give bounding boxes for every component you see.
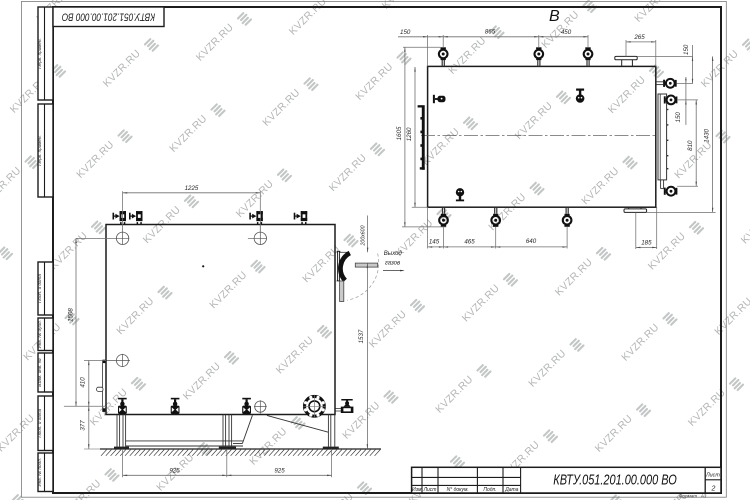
svg-text:1430: 1430 [703,128,710,142]
svg-text:1605: 1605 [396,126,403,140]
svg-text:1260: 1260 [406,127,413,141]
svg-text:925: 925 [274,467,285,474]
svg-text:Инв. № подл.: Инв. № подл. [37,458,42,487]
svg-text:377: 377 [80,420,87,431]
svg-text:810: 810 [687,140,694,151]
svg-text:Подп. и дата: Подп. и дата [37,408,42,437]
svg-text:925: 925 [169,467,180,474]
svg-text:200х600: 200х600 [360,225,366,246]
svg-text:А3: А3 [700,493,707,498]
svg-text:N° докум.: N° докум. [447,487,469,493]
svg-text:Инв. № дубл.: Инв. № дубл. [37,320,42,348]
svg-text:Лист: Лист [705,473,720,479]
svg-text:Перв. примен.: Перв. примен. [37,135,42,166]
svg-text:Дата: Дата [504,487,518,493]
svg-text:В: В [549,8,560,25]
svg-text:Перв. примен.: Перв. примен. [37,38,42,69]
svg-text:150: 150 [675,112,682,123]
svg-text:265: 265 [633,34,645,41]
svg-text:185: 185 [641,239,652,246]
svg-text:Формат: Формат [679,493,697,498]
svg-text:Выход: Выход [384,251,403,257]
svg-text:КВТУ.051.201.00.000 ВО: КВТУ.051.201.00.000 ВО [61,10,155,22]
svg-text:865: 865 [485,29,496,36]
svg-text:Взам. инв. №: Взам. инв. № [37,358,42,386]
svg-text:145: 145 [429,238,440,245]
svg-text:465: 465 [464,239,475,246]
svg-text:150: 150 [400,29,411,36]
svg-text:Подп.: Подп. [483,487,496,493]
svg-text:Лист: Лист [423,487,437,493]
svg-text:1508: 1508 [68,308,75,322]
svg-text:КВТУ.051.201.00.000 ВО: КВТУ.051.201.00.000 ВО [553,471,677,488]
svg-text:Подп. и дата: Подп. и дата [37,274,42,303]
svg-text:410: 410 [80,377,87,388]
svg-text:Изм: Изм [412,487,422,493]
svg-text:2: 2 [711,485,716,492]
svg-text:газов: газов [385,261,400,267]
svg-text:150: 150 [683,44,690,55]
svg-text:640: 640 [526,238,537,245]
svg-text:450: 450 [561,29,572,36]
svg-text:1537: 1537 [358,329,365,343]
svg-text:1225: 1225 [185,185,199,192]
